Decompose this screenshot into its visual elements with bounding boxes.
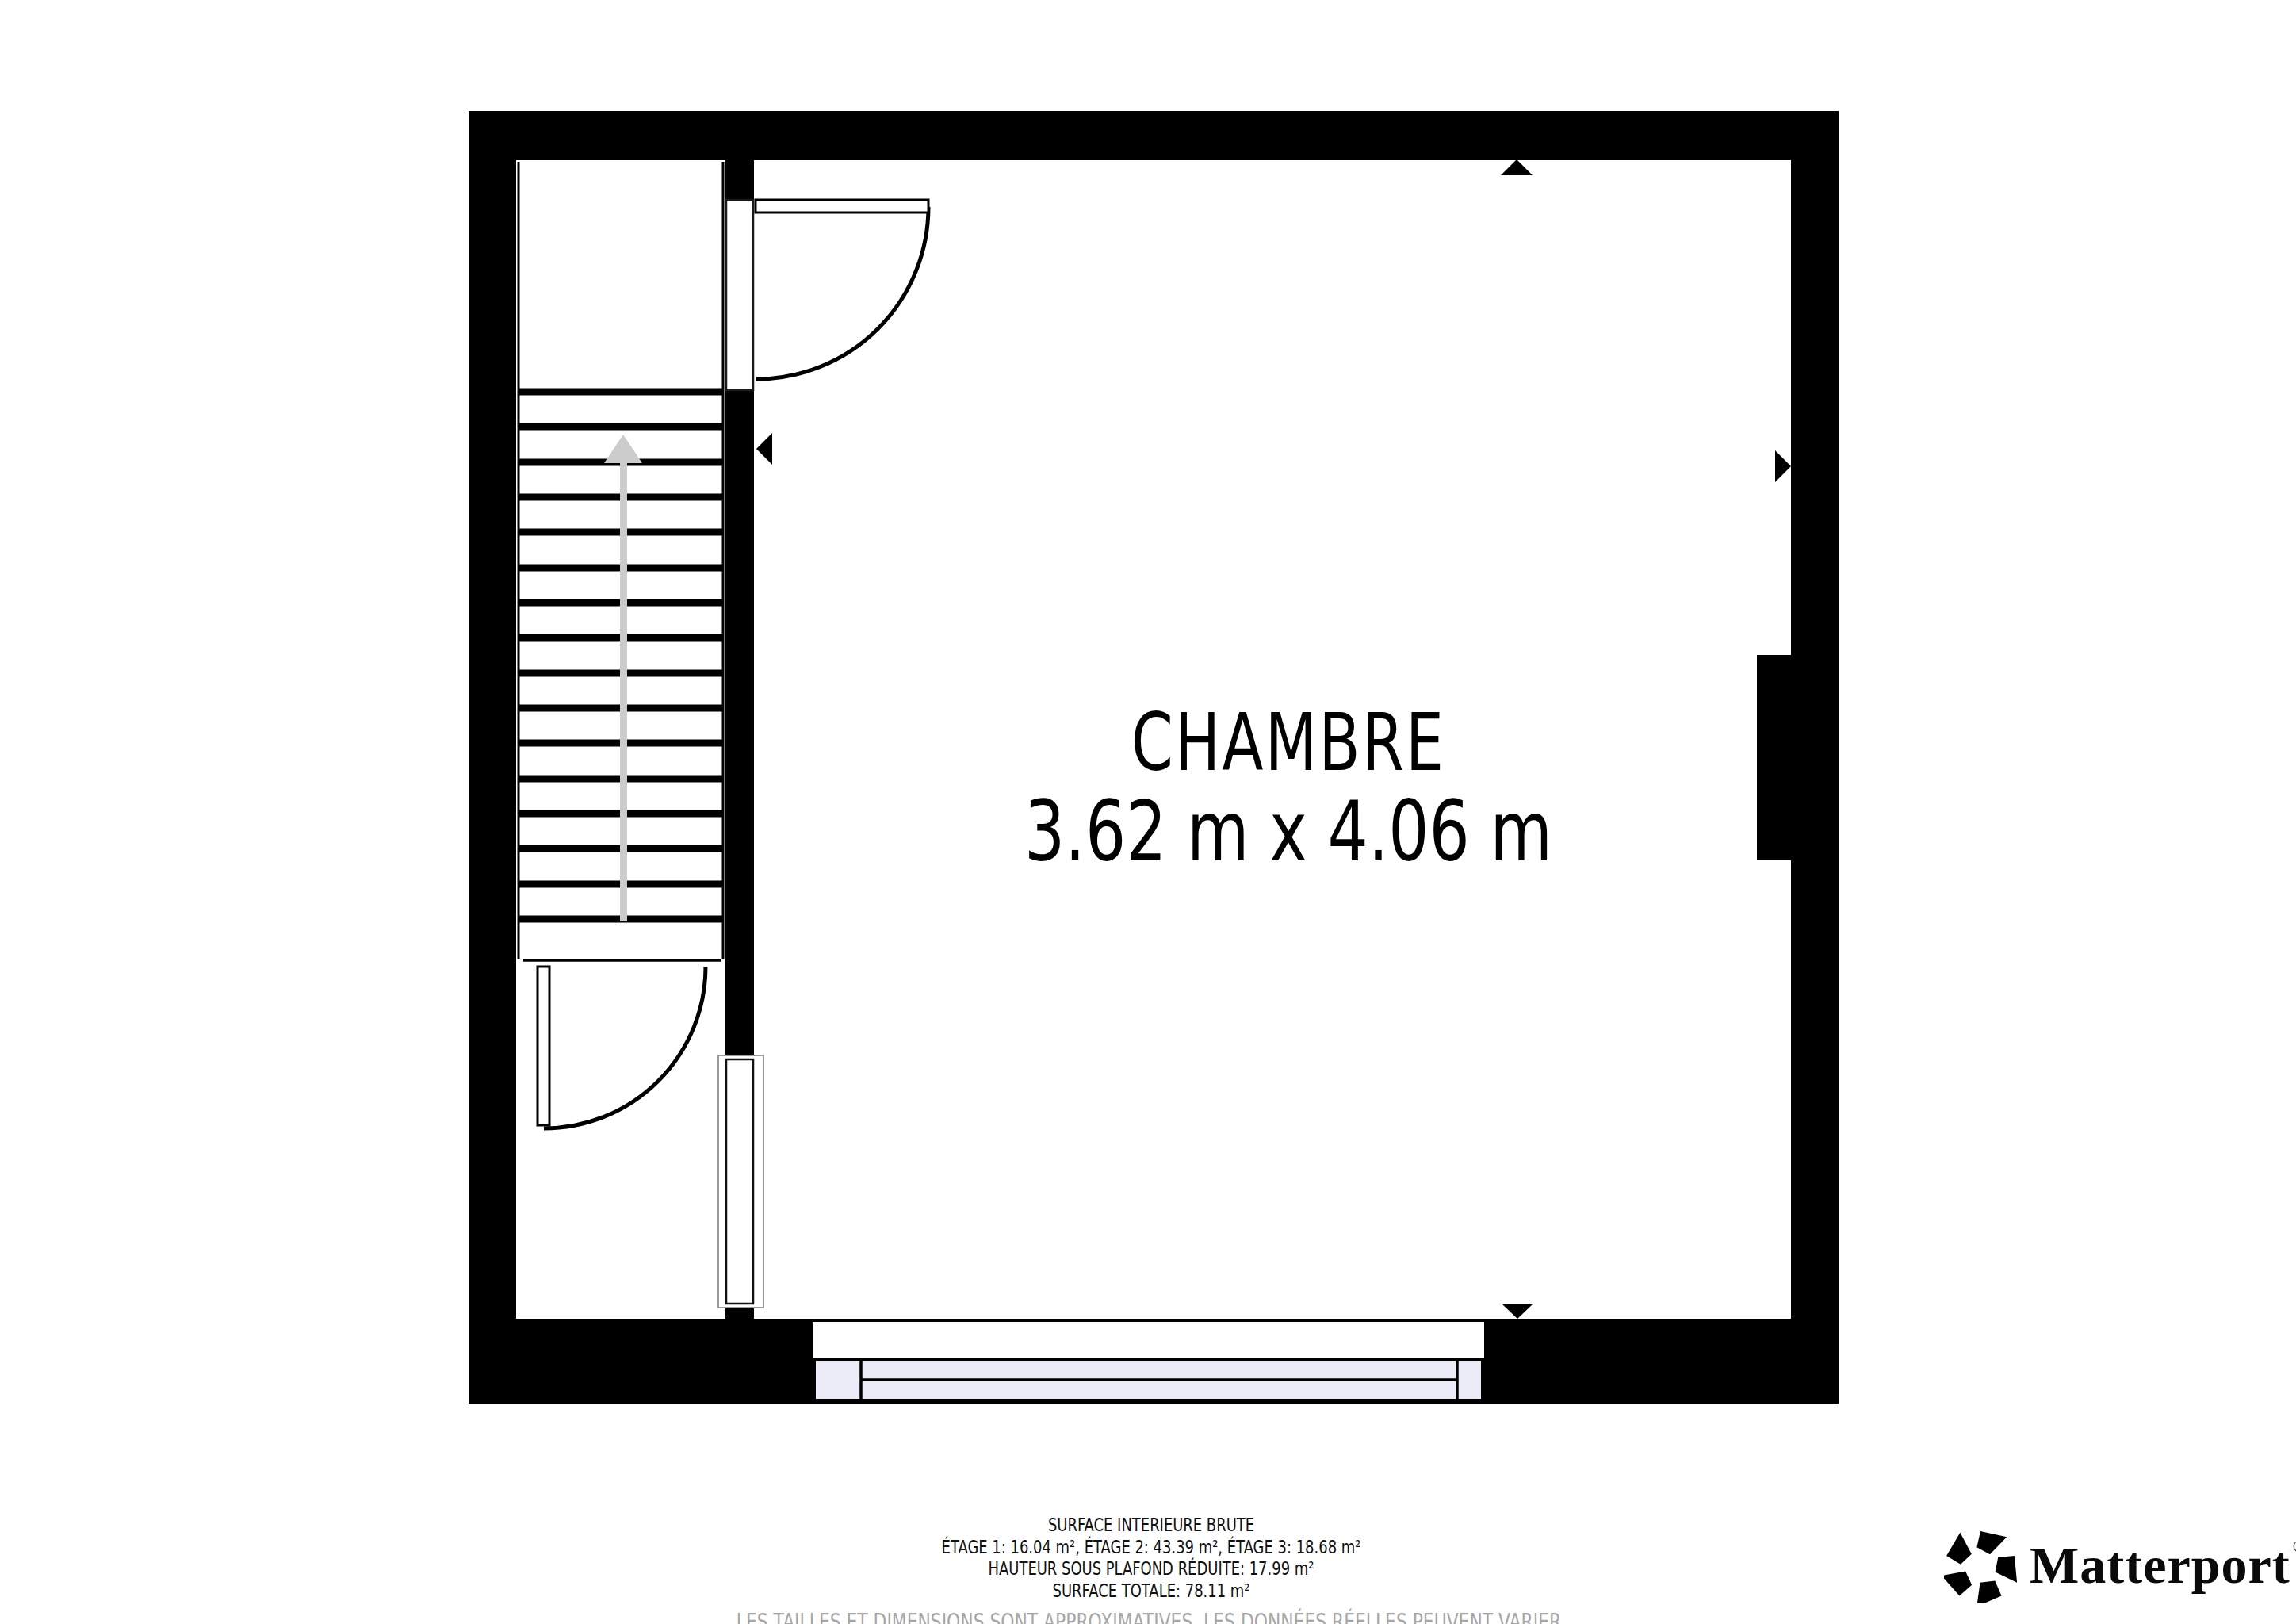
wall-left [469,111,516,1404]
door-lower-left-leaf [538,967,549,1125]
marker-triangle-top [1501,159,1533,175]
matterport-wordmark: Matterport® [2030,1537,2296,1591]
wall-top [469,111,1839,160]
registered-trademark-symbol: ® [2293,1536,2296,1557]
surface-summary: SURFACE INTERIEURE BRUTE ÉTAGE 1: 16.04 … [619,1515,1683,1624]
staircase [519,162,723,960]
surface-summary-title: SURFACE INTERIEURE BRUTE [737,1515,1567,1537]
door-partition-opening [726,1059,753,1304]
door-lower-left-swing-arc [544,967,706,1128]
door-top-swing-arc [756,207,928,379]
door-top-leaf [756,200,928,213]
door-lower-left [538,967,706,1128]
reduced-ceiling-surface: HAUTEUR SOUS PLAFOND RÉDUITE: 17.99 m² [737,1558,1567,1580]
disclaimer-text: LES TAILLES ET DIMENSIONS SONT APPROXIMA… [737,1609,1567,1624]
marker-triangle-bottom [1502,1304,1533,1319]
door-partition-lower [718,1055,763,1308]
partition-wall-upper [725,160,754,200]
door-top [726,200,928,390]
door-top-opening [726,200,753,390]
floorplan-page: CHAMBRE 3.62 m x 4.06 m SURFACE INTERIEU… [0,0,2296,1624]
room-name-label: CHAMBRE [1131,696,1446,789]
wall-right [1791,111,1839,1404]
window-assembly [813,1322,1484,1400]
marker-triangle-right [1775,450,1791,482]
room-dimensions-label: 3.62 m x 4.06 m [1024,783,1552,880]
chimney-block [1757,655,1793,860]
marker-triangle-partition [756,433,772,465]
matterport-logo: Matterport® [1944,1530,2296,1603]
matterport-pinwheel-icon [1944,1530,2017,1603]
partition-wall-middle [725,390,754,1059]
surface-per-floor: ÉTAGE 1: 16.04 m², ÉTAGE 2: 43.39 m², ÉT… [737,1537,1567,1559]
total-surface: SURFACE TOTALE: 78.11 m² [737,1580,1567,1603]
